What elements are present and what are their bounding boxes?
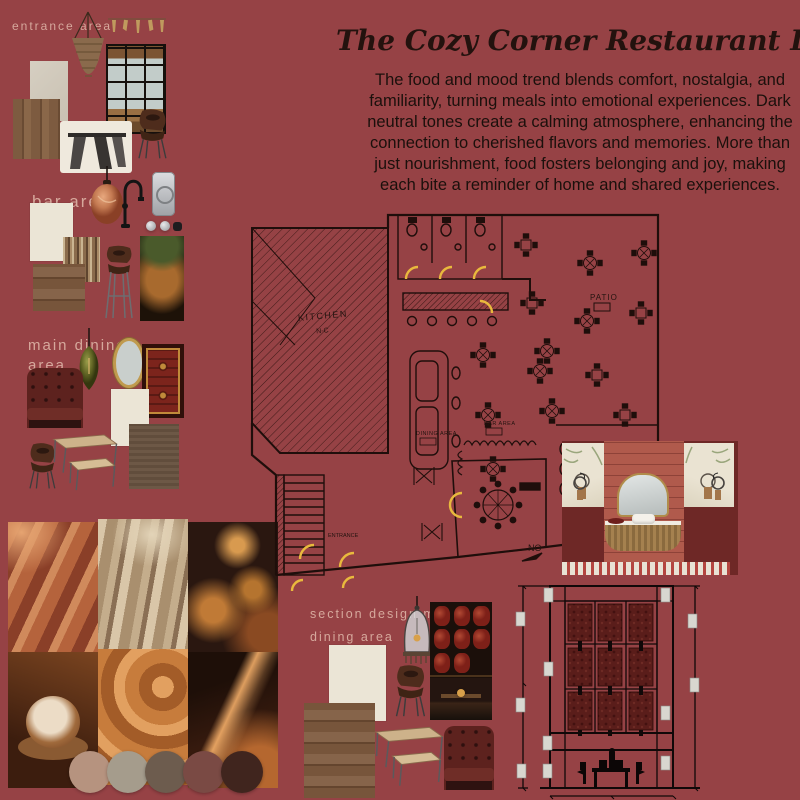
- palette-swatch-1: [69, 751, 111, 793]
- sconce-right-icon: [708, 471, 728, 503]
- plan-entrance-label: ENTRANCE: [328, 533, 359, 539]
- section-elevation-drawing: [500, 578, 800, 800]
- warm-light: [457, 689, 465, 697]
- jar: [473, 629, 489, 649]
- plan-north-label: NO: [528, 543, 542, 553]
- faucet-image: [118, 170, 146, 230]
- knob-black: [173, 222, 182, 231]
- section-booth-image: [444, 726, 494, 790]
- sconce-left-icon: [570, 471, 590, 503]
- jar: [434, 653, 450, 673]
- booth-base: [446, 781, 492, 790]
- chrome-dispenser-image: [152, 172, 175, 216]
- palette-swatch-3: [145, 751, 187, 793]
- bar-stool-image: [102, 244, 136, 320]
- washroom-mirror: [617, 473, 669, 517]
- plan-dining-label: DINING AREA: [416, 431, 457, 437]
- carved-wood-photo: [98, 519, 188, 649]
- section-tables-image: [372, 722, 446, 792]
- hanging-planter-image: [68, 10, 108, 86]
- vessel-sink: [632, 514, 655, 524]
- booth-under-shelf: [430, 678, 492, 720]
- washroom-render: [562, 441, 738, 575]
- plan-bar-label: BAR AREA: [484, 421, 516, 427]
- palette-swatch-5: [221, 751, 263, 793]
- palette-swatch-4: [183, 751, 225, 793]
- mood-board: The Cozy Corner Restaurant Design The fo…: [0, 0, 800, 800]
- dining-tables-image: [50, 430, 120, 496]
- booth-seat: [27, 408, 83, 420]
- entrance-chair-image: [134, 108, 170, 160]
- knob-silver-1: [146, 221, 156, 231]
- tile-floor-strip: [562, 562, 730, 575]
- jar: [473, 606, 489, 626]
- brass-lights-image: [106, 14, 168, 40]
- red-glass-bar-photo: [430, 602, 492, 720]
- gold-mirror-image: [113, 338, 145, 388]
- jar: [454, 606, 470, 626]
- knob-silver-2: [160, 221, 170, 231]
- jar: [434, 606, 450, 626]
- bar-interior-photo: [140, 236, 184, 321]
- canyon-photo: [8, 522, 98, 652]
- intro-paragraph: The food and mood trend blends comfort, …: [366, 70, 794, 196]
- palette-swatch-2: [107, 751, 149, 793]
- floor-wood-swatch-section: [304, 703, 375, 798]
- booth-seat: [444, 768, 494, 781]
- page-title: The Cozy Corner Restaurant Design: [336, 24, 794, 57]
- dining-booth-image: [27, 368, 83, 428]
- dispenser-ring: [156, 186, 174, 204]
- carpet-swatch: [129, 424, 179, 489]
- plan-patio-label: PATIO: [590, 293, 618, 302]
- counter-bowl: [608, 518, 624, 524]
- cocoa-mug: [26, 696, 80, 748]
- jar: [454, 629, 470, 649]
- floor-wood-swatch-bar: [33, 264, 85, 311]
- booth-base: [29, 420, 81, 428]
- plan-kitchen-sub-label: N-C: [316, 327, 329, 335]
- vanity-cabinet: [605, 525, 681, 551]
- jar: [434, 629, 450, 649]
- section-chair-image: [392, 662, 428, 720]
- jar: [454, 653, 470, 673]
- wood-plank-swatch: [13, 99, 60, 159]
